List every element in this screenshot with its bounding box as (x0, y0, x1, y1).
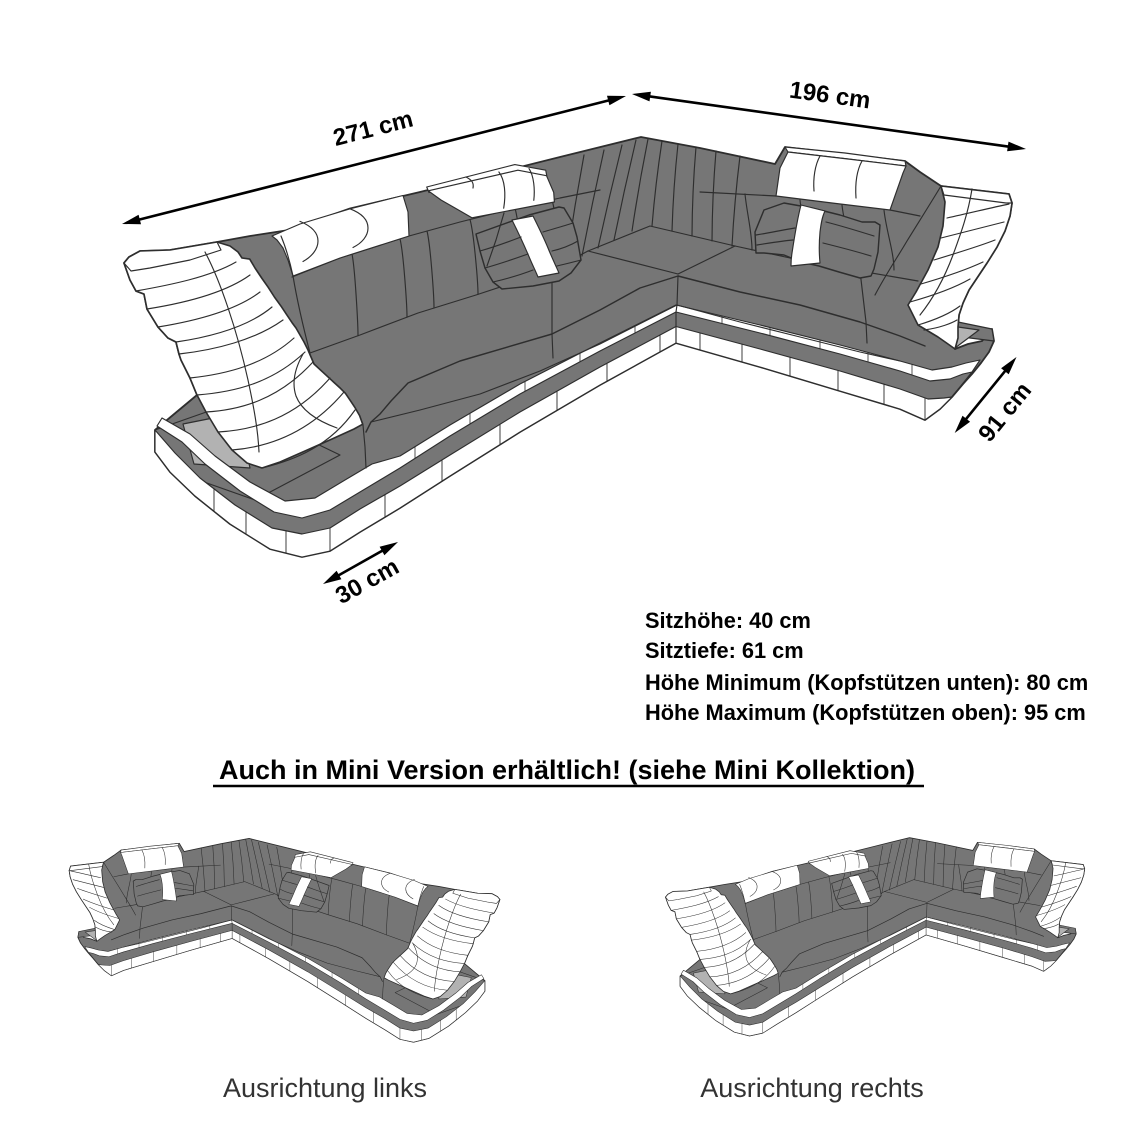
svg-text:30 cm: 30 cm (331, 553, 404, 610)
svg-text:91 cm: 91 cm (973, 377, 1037, 447)
svg-text:271 cm: 271 cm (330, 106, 416, 152)
svg-text:Höhe Minimum (Kopfstützen unte: Höhe Minimum (Kopfstützen unten): 80 cm (645, 670, 1088, 695)
svg-text:Sitzhöhe: 40 cm: Sitzhöhe: 40 cm (645, 608, 811, 633)
svg-text:196 cm: 196 cm (788, 77, 872, 115)
svg-text:Ausrichtung rechts: Ausrichtung rechts (700, 1073, 924, 1103)
svg-text:Höhe Maximum (Kopfstützen oben: Höhe Maximum (Kopfstützen oben): 95 cm (645, 700, 1086, 725)
svg-text:Auch in Mini Version erhältlic: Auch in Mini Version erhältlich! (siehe … (219, 755, 915, 785)
svg-text:Sitztiefe: 61 cm: Sitztiefe: 61 cm (645, 638, 804, 663)
svg-text:Ausrichtung links: Ausrichtung links (223, 1073, 427, 1103)
